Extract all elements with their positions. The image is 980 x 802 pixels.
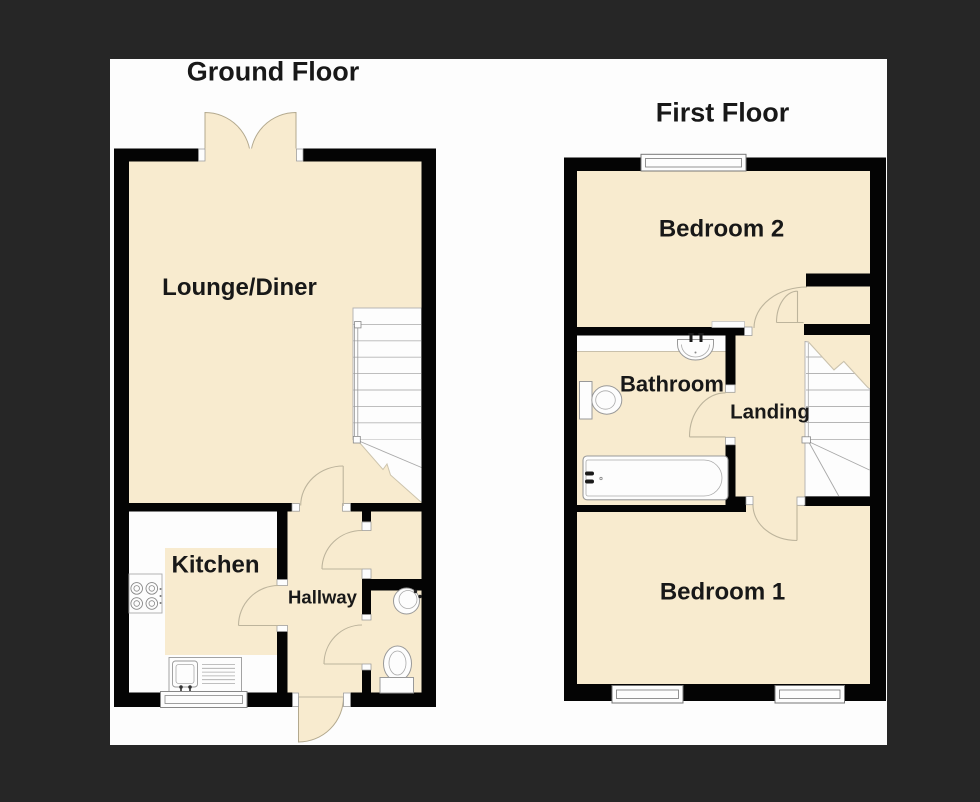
- svg-text:Hallway: Hallway: [288, 587, 358, 608]
- svg-text:Lounge/Diner: Lounge/Diner: [162, 274, 317, 301]
- svg-text:Bedroom 2: Bedroom 2: [659, 216, 784, 243]
- svg-text:Bathroom: Bathroom: [620, 372, 724, 397]
- svg-text:Bedroom 1: Bedroom 1: [660, 579, 785, 606]
- svg-text:Kitchen: Kitchen: [171, 552, 259, 579]
- svg-text:Landing: Landing: [730, 401, 810, 424]
- svg-text:First Floor: First Floor: [656, 98, 790, 128]
- svg-text:Ground Floor: Ground Floor: [187, 57, 360, 87]
